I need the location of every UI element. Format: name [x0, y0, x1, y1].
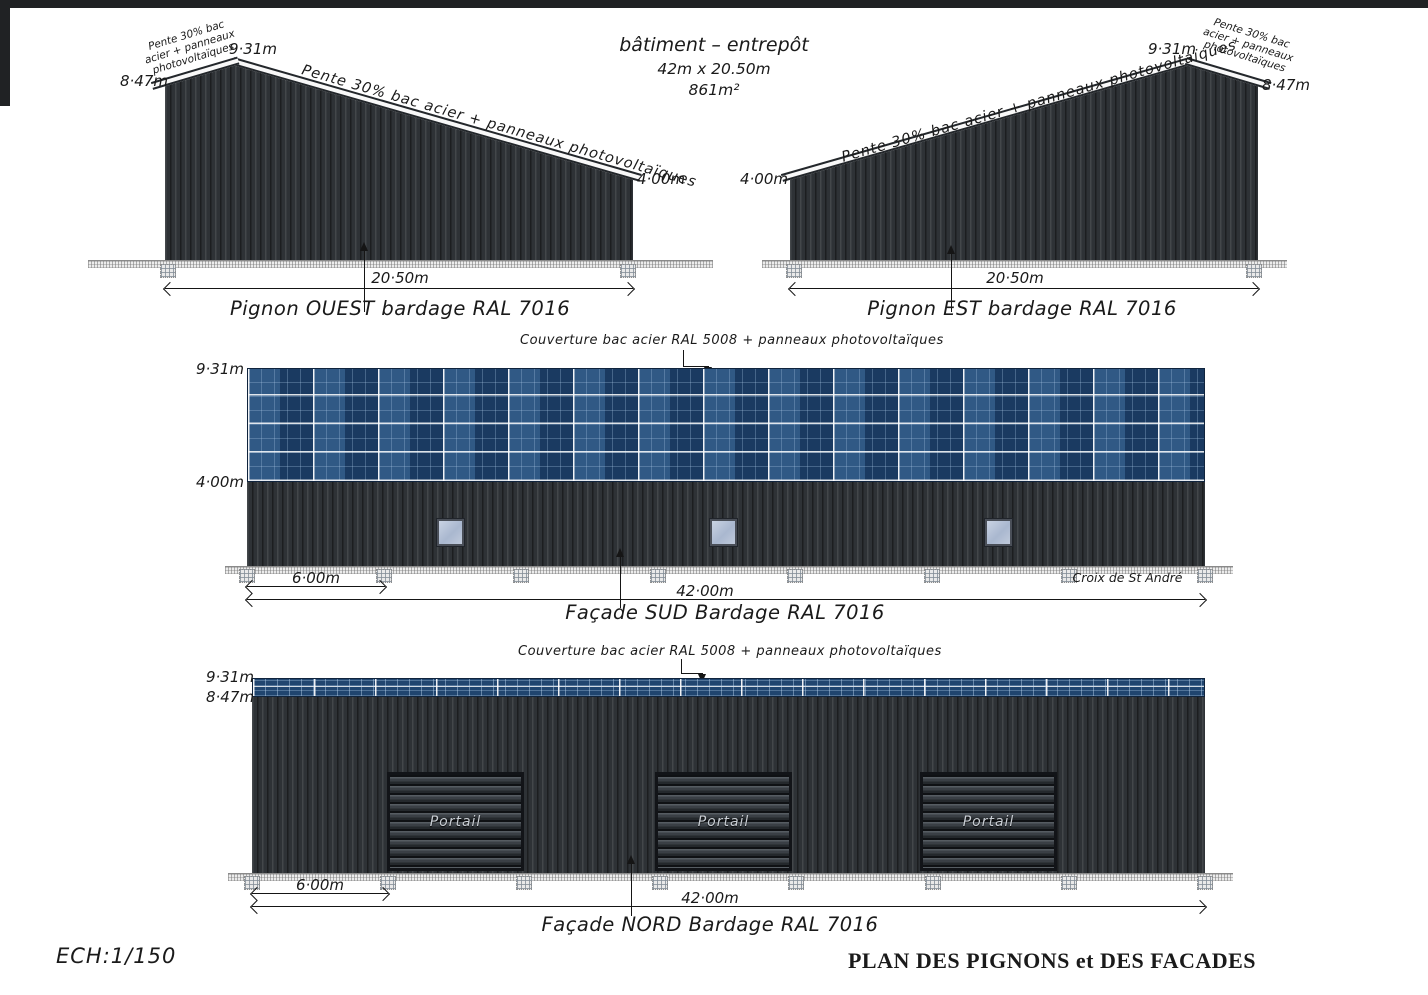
building-title: bâtiment – entrepôt: [564, 34, 864, 56]
footing: [1197, 876, 1213, 890]
footing: [650, 569, 666, 583]
pignon-est-height-right: 8·47m: [1262, 76, 1310, 94]
footing: [1246, 264, 1262, 278]
window: [437, 519, 464, 546]
footing: [1197, 569, 1213, 583]
pignon-ouest-height-left: 8·47m: [120, 72, 168, 90]
pignon-est-height-peak: 9·31m: [1148, 40, 1196, 58]
facade-nord-roof-note: Couverture bac acier RAL 5008 + panneaux…: [518, 644, 870, 659]
building-area: 861m²: [564, 81, 864, 99]
footing: [516, 876, 532, 890]
footing: [652, 876, 668, 890]
footing: [160, 264, 176, 278]
leader-line: [631, 863, 632, 916]
facade-nord-solar-strip: [252, 678, 1205, 697]
footing: [924, 569, 940, 583]
facade-sud-height-top: 9·31m: [196, 360, 244, 378]
frame-top-bar: [0, 0, 1428, 8]
facade-nord-height-mid: 8·47m: [206, 688, 254, 706]
facade-sud-label: Façade SUD Bardage RAL 7016: [525, 601, 925, 624]
sheet-title: PLAN DES PIGNONS et DES FACADES: [837, 948, 1267, 974]
footing: [513, 569, 529, 583]
pignon-est-ground: [762, 260, 1287, 268]
facade-sud-height-mid: 4·00m: [196, 473, 244, 491]
pignon-ouest-label: Pignon OUEST bardage RAL 7016: [230, 297, 570, 320]
scale-note: ECH:1/150: [56, 944, 176, 968]
facade-nord-bay-label: 6·00m: [252, 876, 388, 894]
footing: [620, 264, 636, 278]
facade-sud-roof-note: Couverture bac acier RAL 5008 + panneaux…: [520, 333, 872, 348]
window: [985, 519, 1012, 546]
door-portail: Portail: [920, 772, 1057, 871]
facade-sud-total-label: 42·00m: [640, 582, 770, 600]
door-portail: Portail: [387, 772, 524, 871]
leader-line: [683, 350, 684, 366]
leader-line: [681, 659, 682, 673]
pignon-est-label: Pignon EST bardage RAL 7016: [852, 297, 1192, 320]
footing: [925, 876, 941, 890]
pignon-ouest-height-peak: 9·31m: [229, 40, 277, 58]
frame-left-bar: [0, 0, 10, 106]
facade-sud-brace-note: Croix de St André: [1060, 570, 1195, 585]
facade-nord-label: Façade NORD Bardage RAL 7016: [510, 913, 910, 936]
drawing-sheet: bâtiment – entrepôt 42m x 20.50m 861m² P…: [0, 0, 1428, 995]
pignon-est-height-left: 4·00m: [738, 170, 788, 188]
pignon-ouest-height-right: 4·00m: [637, 170, 685, 188]
footing: [786, 264, 802, 278]
footing: [788, 876, 804, 890]
facade-sud-solar-panels: [247, 368, 1205, 482]
door-portail: Portail: [655, 772, 792, 871]
pignon-ouest-width-dimension: [165, 288, 633, 289]
pignon-est-width-dimension: [790, 288, 1258, 289]
facade-nord-total-label: 42·00m: [645, 889, 775, 907]
facade-sud-bay-label: 6·00m: [247, 569, 385, 587]
facade-nord-height-top: 9·31m: [206, 668, 254, 686]
footing: [787, 569, 803, 583]
building-size: 42m x 20.50m: [564, 60, 864, 78]
footing: [1061, 876, 1077, 890]
pignon-est-width-label: 20·50m: [945, 269, 1085, 287]
pignon-ouest-width-label: 20·50m: [330, 269, 470, 287]
window: [710, 519, 737, 546]
